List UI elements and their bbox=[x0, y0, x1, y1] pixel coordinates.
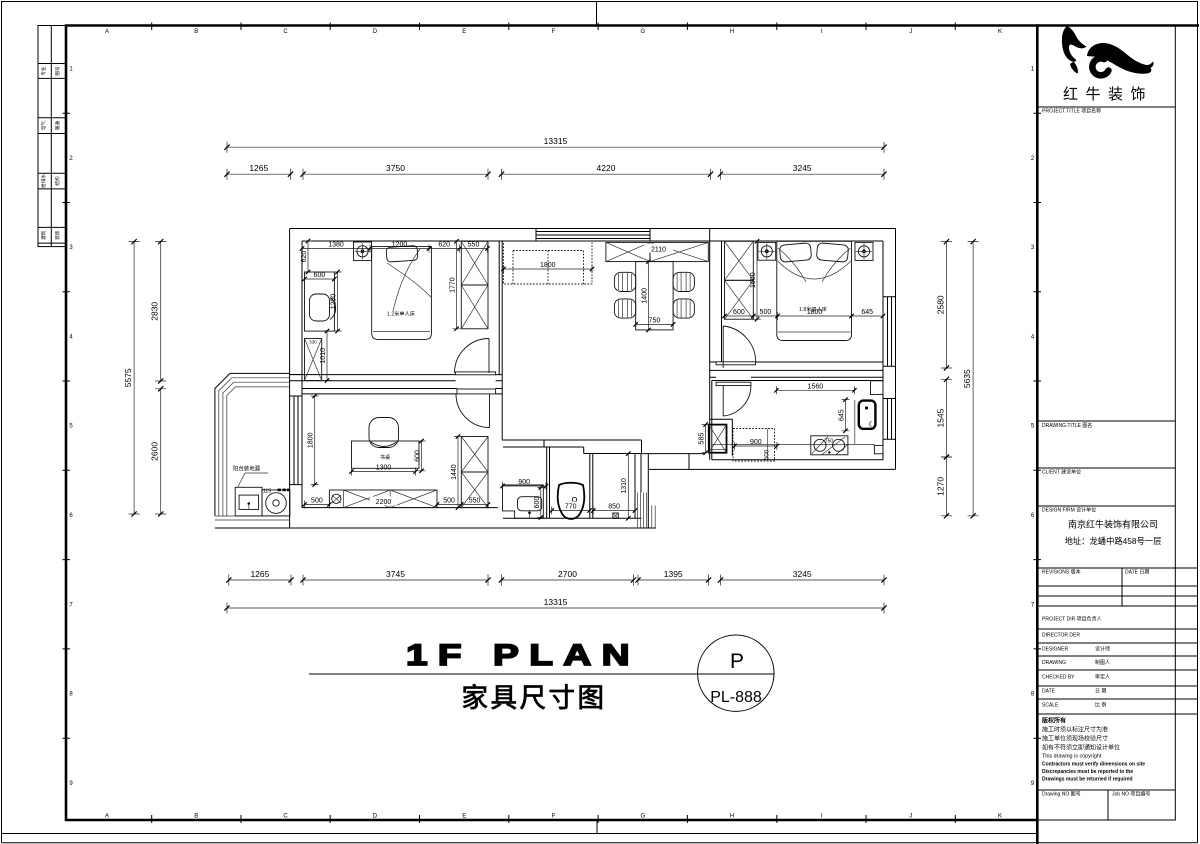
svg-text:750: 750 bbox=[649, 318, 661, 325]
svg-text:审定人: 审定人 bbox=[1095, 674, 1110, 681]
svg-text:5575: 5575 bbox=[123, 368, 133, 387]
svg-text:制图人: 制图人 bbox=[1095, 659, 1110, 666]
svg-text:500: 500 bbox=[311, 498, 323, 505]
svg-text:1265: 1265 bbox=[249, 163, 268, 173]
svg-text:家具尺寸图: 家具尺寸图 bbox=[462, 683, 607, 713]
svg-text:1310: 1310 bbox=[621, 478, 628, 494]
svg-text:G: G bbox=[640, 29, 645, 35]
svg-text:1200: 1200 bbox=[330, 294, 337, 310]
svg-text:4220: 4220 bbox=[597, 163, 616, 173]
svg-text:1800: 1800 bbox=[308, 432, 315, 448]
svg-text:850: 850 bbox=[608, 504, 620, 511]
svg-text:阳台装地漏: 阳台装地漏 bbox=[233, 465, 261, 473]
svg-text:550: 550 bbox=[469, 498, 481, 505]
svg-text:500: 500 bbox=[443, 498, 455, 505]
svg-text:红牛装饰: 红牛装饰 bbox=[1063, 86, 1153, 103]
svg-text:500: 500 bbox=[760, 309, 772, 316]
svg-text:PL-888: PL-888 bbox=[710, 689, 762, 706]
svg-text:REVISIONS 版本: REVISIONS 版本 bbox=[1042, 569, 1081, 576]
svg-text:550: 550 bbox=[468, 242, 480, 249]
svg-text:暖通: 暖通 bbox=[54, 121, 61, 131]
svg-text:2580: 2580 bbox=[935, 295, 945, 314]
svg-text:330: 330 bbox=[309, 340, 317, 345]
svg-text:1770: 1770 bbox=[449, 277, 456, 293]
svg-text:1400: 1400 bbox=[641, 288, 648, 304]
svg-text:DATE: DATE bbox=[1042, 689, 1056, 695]
svg-text:建筑: 建筑 bbox=[40, 230, 47, 240]
svg-text:专业: 专业 bbox=[40, 66, 47, 76]
svg-text:E: E bbox=[462, 29, 466, 35]
svg-text:结构: 结构 bbox=[54, 176, 61, 186]
svg-text:3745: 3745 bbox=[386, 569, 405, 579]
svg-text:C: C bbox=[283, 814, 288, 820]
svg-text:电气: 电气 bbox=[40, 121, 46, 131]
svg-text:2700: 2700 bbox=[558, 569, 577, 579]
svg-text:A: A bbox=[105, 29, 109, 35]
svg-text:13315: 13315 bbox=[544, 136, 568, 146]
svg-text:600: 600 bbox=[414, 450, 421, 462]
svg-text:1200: 1200 bbox=[392, 242, 408, 249]
svg-text:13315: 13315 bbox=[544, 597, 568, 607]
svg-text:1440: 1440 bbox=[451, 464, 458, 480]
svg-text:DESIGNER: DESIGNER bbox=[1042, 647, 1069, 653]
svg-text:585: 585 bbox=[698, 433, 705, 445]
svg-text:PROJECT.TITLE 项目名称: PROJECT.TITLE 项目名称 bbox=[1042, 108, 1101, 115]
svg-text:南京红牛装饰有限公司: 南京红牛装饰有限公司 bbox=[1068, 519, 1158, 530]
svg-text:3245: 3245 bbox=[793, 569, 812, 579]
svg-text:F: F bbox=[552, 814, 556, 820]
svg-text:2600: 2600 bbox=[150, 442, 160, 461]
svg-text:G: G bbox=[640, 814, 645, 820]
svg-text:B: B bbox=[194, 29, 198, 35]
svg-text:645: 645 bbox=[861, 309, 873, 316]
svg-text:DRAWING.TITLE 图名: DRAWING.TITLE 图名 bbox=[1042, 422, 1092, 429]
svg-text:Discrepancies must be reported: Discrepancies must be reported to the bbox=[1042, 769, 1133, 775]
svg-text:3245: 3245 bbox=[793, 163, 812, 173]
svg-text:600: 600 bbox=[314, 272, 326, 279]
svg-text:1F PLAN: 1F PLAN bbox=[406, 639, 640, 672]
svg-text:如有不符须立即通知设计单位: 如有不符须立即通知设计单位 bbox=[1042, 744, 1120, 752]
svg-text:1.2米单人床: 1.2米单人床 bbox=[387, 310, 416, 318]
svg-text:H: H bbox=[730, 814, 734, 820]
svg-text:D: D bbox=[373, 814, 378, 820]
svg-text:115: 115 bbox=[263, 489, 272, 495]
svg-text:1800: 1800 bbox=[540, 262, 556, 269]
svg-text:DATE 日期: DATE 日期 bbox=[1125, 570, 1149, 576]
svg-text:D: D bbox=[373, 29, 378, 35]
svg-text:770: 770 bbox=[565, 504, 577, 511]
svg-text:Contractors must verify dimens: Contractors must verify dimensions on si… bbox=[1042, 762, 1145, 768]
svg-text:1800: 1800 bbox=[807, 309, 823, 316]
svg-text:设计师: 设计师 bbox=[1095, 646, 1110, 653]
svg-text:600: 600 bbox=[764, 449, 771, 460]
svg-text:1380: 1380 bbox=[328, 242, 344, 249]
svg-text:日 期: 日 期 bbox=[1095, 689, 1106, 695]
svg-text:900: 900 bbox=[518, 479, 530, 486]
svg-text:给排水: 给排水 bbox=[40, 174, 47, 188]
svg-text:645: 645 bbox=[838, 409, 845, 421]
svg-text:DRAWING: DRAWING bbox=[1042, 660, 1066, 666]
svg-text:CHECKED BY: CHECKED BY bbox=[1042, 675, 1075, 681]
svg-text:750: 750 bbox=[825, 439, 834, 445]
svg-text:版权所有: 版权所有 bbox=[1041, 717, 1066, 725]
svg-text:DIRECTOR DER: DIRECTOR DER bbox=[1042, 633, 1080, 639]
svg-text:F: F bbox=[552, 29, 556, 35]
svg-text:1010: 1010 bbox=[320, 348, 327, 364]
svg-text:E: E bbox=[462, 814, 466, 820]
svg-text:600: 600 bbox=[534, 497, 541, 509]
svg-text:施工时须以标注尺寸为准: 施工时须以标注尺寸为准 bbox=[1042, 726, 1108, 734]
svg-text:装饰: 装饰 bbox=[54, 230, 61, 240]
svg-text:CLIENT 建设单位: CLIENT 建设单位 bbox=[1042, 469, 1081, 476]
svg-text:2110: 2110 bbox=[651, 247, 666, 254]
svg-text:1270: 1270 bbox=[935, 477, 945, 496]
svg-text:比 例: 比 例 bbox=[1095, 702, 1106, 709]
svg-text:J: J bbox=[909, 29, 912, 35]
svg-text:1395: 1395 bbox=[664, 569, 683, 579]
svg-text:J: J bbox=[909, 814, 912, 820]
svg-text:施工单位须现场校验尺寸: 施工单位须现场校验尺寸 bbox=[1042, 735, 1108, 743]
svg-text:DESIGN FIRM 设计单位: DESIGN FIRM 设计单位 bbox=[1042, 507, 1096, 514]
svg-text:Job NO 项目编号: Job NO 项目编号 bbox=[1112, 791, 1150, 798]
svg-text:620: 620 bbox=[301, 251, 308, 263]
svg-text:3750: 3750 bbox=[386, 163, 405, 173]
svg-text:SCALE: SCALE bbox=[1042, 703, 1059, 709]
svg-text:PROJECT DIR 项目负责人: PROJECT DIR 项目负责人 bbox=[1042, 616, 1102, 623]
svg-text:1560: 1560 bbox=[808, 384, 824, 391]
svg-text:地址：龙蟠中路458号一层: 地址：龙蟠中路458号一层 bbox=[1065, 536, 1162, 546]
svg-text:B: B bbox=[194, 814, 198, 820]
svg-text:A: A bbox=[105, 814, 109, 820]
svg-text:Drawing NO 图号: Drawing NO 图号 bbox=[1042, 792, 1081, 798]
svg-text:600: 600 bbox=[733, 309, 745, 316]
svg-text:1265: 1265 bbox=[250, 569, 269, 579]
svg-text:2200: 2200 bbox=[376, 499, 392, 506]
svg-text:H: H bbox=[730, 29, 734, 35]
svg-text:K: K bbox=[998, 29, 1002, 35]
svg-text:1545: 1545 bbox=[935, 408, 945, 427]
svg-text:1300: 1300 bbox=[376, 465, 392, 472]
svg-text:This drawing is copyright: This drawing is copyright bbox=[1042, 754, 1102, 760]
svg-text:P: P bbox=[730, 650, 744, 673]
svg-text:2830: 2830 bbox=[150, 302, 160, 321]
svg-text:C: C bbox=[283, 29, 288, 35]
svg-text:5635: 5635 bbox=[962, 369, 972, 388]
svg-text:书桌: 书桌 bbox=[380, 453, 390, 461]
svg-text:620: 620 bbox=[438, 242, 450, 249]
svg-text:900: 900 bbox=[750, 439, 762, 446]
svg-text:Drawings must be returned if r: Drawings must be returned if required bbox=[1042, 777, 1133, 783]
svg-text:K: K bbox=[998, 814, 1002, 820]
svg-text:1600: 1600 bbox=[750, 272, 757, 288]
